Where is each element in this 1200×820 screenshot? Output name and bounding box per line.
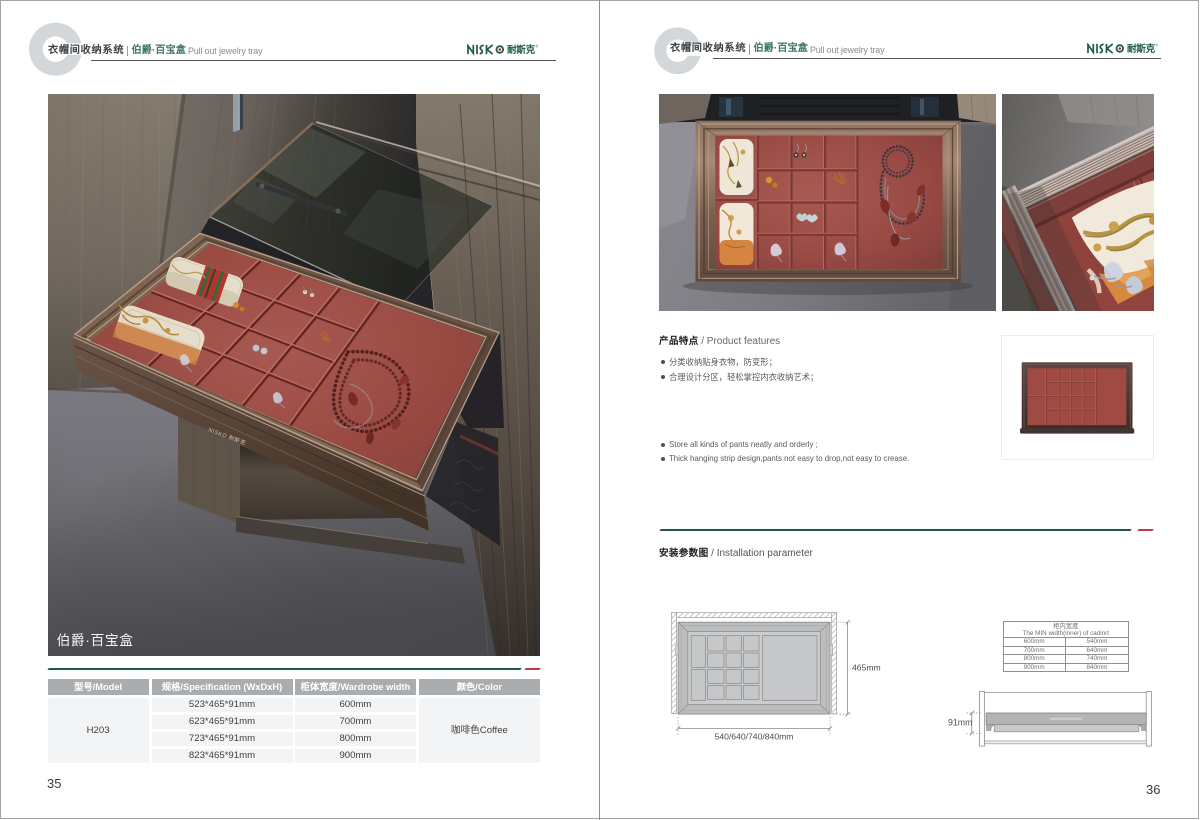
svg-text:540/640/740/840mm: 540/640/740/840mm bbox=[715, 732, 794, 742]
svg-text:465mm: 465mm bbox=[852, 663, 881, 673]
svg-text:®: ® bbox=[536, 45, 539, 49]
svg-text:91mm: 91mm bbox=[948, 718, 972, 728]
svg-text:伯爵·百宝盒: 伯爵·百宝盒 bbox=[57, 632, 134, 648]
svg-text:耐斯克: 耐斯克 bbox=[507, 44, 536, 56]
svg-text:耐斯克: 耐斯克 bbox=[1127, 43, 1156, 55]
svg-text:®: ® bbox=[1156, 44, 1159, 48]
